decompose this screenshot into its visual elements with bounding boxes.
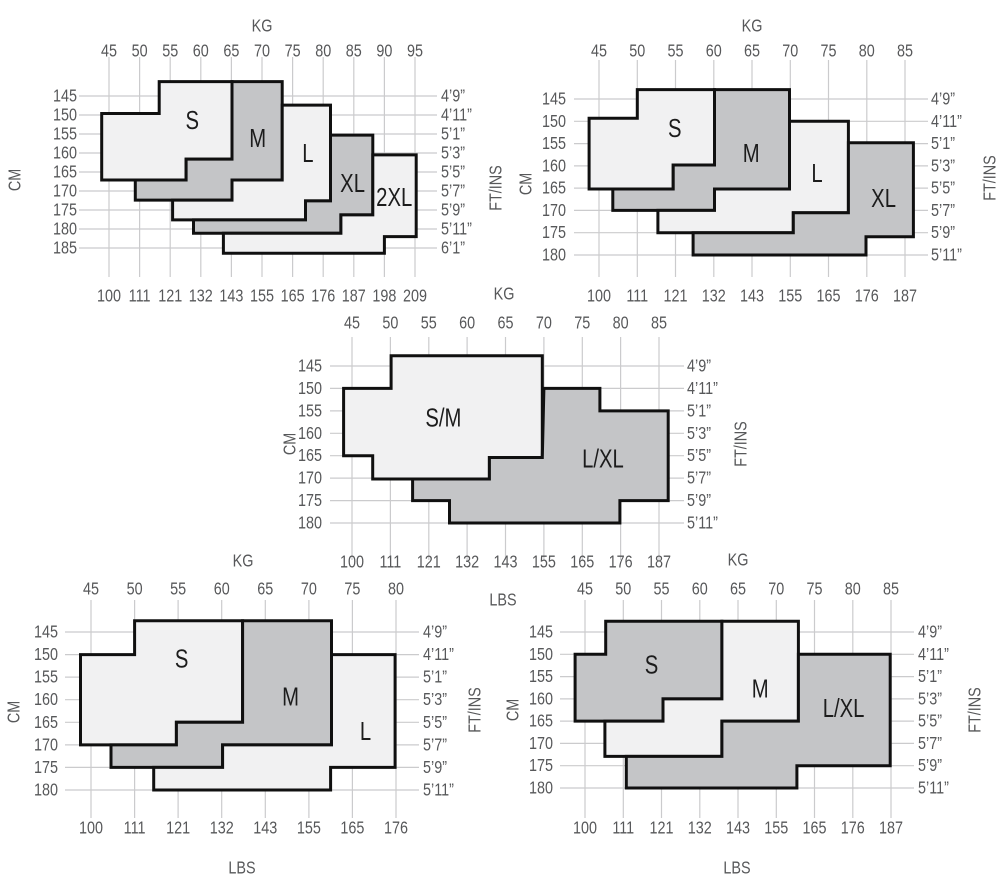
- cm-tick-label: 145: [34, 622, 58, 642]
- lbs-tick-label: 143: [493, 552, 517, 572]
- lbs-tick-label: 155: [297, 818, 321, 838]
- ftins-tick-label: 5’11”: [423, 780, 454, 800]
- kg-tick-label: 50: [382, 313, 398, 333]
- kg-tick-label: 60: [459, 313, 475, 333]
- ftins-tick-label: 5’11”: [931, 245, 962, 265]
- size-region-label-s: S: [645, 650, 659, 679]
- lbs-tick-label: 198: [372, 286, 396, 306]
- ftins-tick-label: 5’7”: [931, 200, 955, 220]
- kg-tick-label: 50: [615, 579, 631, 599]
- cm-tick-label: 170: [298, 468, 322, 488]
- lbs-tick-label: 176: [311, 286, 335, 306]
- ftins-tick-label: 5’5”: [423, 712, 447, 732]
- lbs-tick-label: 121: [166, 818, 190, 838]
- ftins-axis-title: FT/INS: [980, 155, 1000, 201]
- lbs-tick-label: 100: [97, 286, 121, 306]
- ftins-tick-label: 5’3”: [441, 143, 465, 163]
- lbs-tick-label: 187: [893, 286, 917, 306]
- size-region-label-xl: XL: [871, 183, 896, 212]
- cm-tick-label: 145: [298, 356, 322, 376]
- kg-tick-label: 50: [629, 41, 645, 61]
- size-region-label-s: S: [185, 105, 199, 134]
- ftins-tick-label: 5’5”: [441, 162, 465, 182]
- kg-tick-label: 60: [193, 41, 209, 61]
- ftins-tick-label: 5’3”: [918, 689, 942, 709]
- lbs-axis-title: LBS: [228, 858, 255, 878]
- kg-tick-label: 65: [730, 579, 746, 599]
- cm-axis-title: CM: [4, 701, 24, 723]
- size-region-label-2xl: 2XL: [376, 183, 412, 212]
- kg-tick-label: 75: [344, 579, 360, 599]
- lbs-tick-label: 121: [663, 286, 687, 306]
- ftins-tick-label: 6’1”: [441, 238, 465, 258]
- lbs-tick-label: 111: [626, 286, 648, 306]
- lbs-tick-label: 100: [587, 286, 611, 306]
- lbs-tick-label: 176: [855, 286, 879, 306]
- cm-tick-label: 145: [53, 86, 77, 106]
- ftins-tick-label: 4’9”: [931, 89, 955, 109]
- kg-tick-label: 95: [407, 41, 423, 61]
- cm-tick-label: 175: [298, 491, 322, 511]
- cm-tick-label: 150: [542, 111, 566, 131]
- lbs-tick-label: 121: [649, 818, 673, 838]
- kg-tick-label: 85: [346, 41, 362, 61]
- ftins-tick-label: 5’3”: [423, 690, 447, 710]
- ftins-tick-label: 4’11”: [687, 378, 718, 398]
- kg-tick-label: 90: [376, 41, 392, 61]
- ftins-tick-label: 5’3”: [687, 423, 711, 443]
- cm-tick-label: 175: [529, 756, 553, 776]
- kg-tick-label: 55: [653, 579, 669, 599]
- lbs-tick-label: 187: [879, 818, 903, 838]
- lbs-tick-label: 165: [816, 286, 840, 306]
- ftins-tick-label: 5’7”: [441, 181, 465, 201]
- cm-tick-label: 185: [53, 238, 77, 258]
- ftins-tick-label: 5’1”: [918, 667, 942, 687]
- ftins-tick-label: 4’11”: [931, 111, 962, 131]
- lbs-tick-label: 176: [609, 552, 633, 572]
- cm-tick-label: 160: [542, 156, 566, 176]
- kg-tick-label: 70: [301, 579, 317, 599]
- cm-tick-label: 155: [53, 124, 77, 144]
- kg-tick-label: 80: [859, 41, 875, 61]
- lbs-tick-label: 121: [417, 552, 441, 572]
- cm-tick-label: 155: [298, 401, 322, 421]
- kg-tick-label: 45: [344, 313, 360, 333]
- kg-tick-label: 55: [421, 313, 437, 333]
- kg-axis-title: KG: [233, 551, 254, 571]
- kg-tick-label: 60: [706, 41, 722, 61]
- size-region-label-l: L: [302, 139, 313, 168]
- kg-tick-label: 80: [845, 579, 861, 599]
- ftins-tick-label: 5’1”: [687, 401, 711, 421]
- cm-tick-label: 180: [542, 245, 566, 265]
- size-charts-canvas: SMLXL2XL45505560657075808590951001111211…: [0, 0, 1005, 891]
- size-region-label-s: S: [668, 113, 682, 142]
- size-region-label-l: L: [360, 717, 371, 746]
- ftins-tick-label: 5’3”: [931, 156, 955, 176]
- cm-tick-label: 160: [529, 689, 553, 709]
- lbs-tick-label: 209: [403, 286, 427, 306]
- cm-tick-label: 170: [529, 733, 553, 753]
- ftins-tick-label: 5’7”: [918, 733, 942, 753]
- ftins-axis-title: FT/INS: [465, 687, 485, 733]
- cm-axis-title: CM: [503, 699, 523, 721]
- kg-tick-label: 65: [257, 579, 273, 599]
- ftins-tick-label: 5’11”: [918, 778, 949, 798]
- ftins-tick-label: 5’1”: [441, 124, 465, 144]
- size-region-label-m: M: [282, 682, 299, 711]
- cm-tick-label: 160: [298, 423, 322, 443]
- cm-tick-label: 150: [298, 378, 322, 398]
- lbs-tick-label: 100: [340, 552, 364, 572]
- kg-tick-label: 60: [214, 579, 230, 599]
- lbs-tick-label: 143: [740, 286, 764, 306]
- cm-tick-label: 165: [34, 712, 58, 732]
- chart-2-four-sizes: SMLXL45505560657075808510011112113214315…: [516, 16, 1000, 306]
- kg-tick-label: 65: [223, 41, 239, 61]
- kg-tick-label: 50: [132, 41, 148, 61]
- cm-tick-label: 150: [34, 645, 58, 665]
- ftins-tick-label: 5’9”: [423, 757, 447, 777]
- chart-5-three-sizes: SML/XL4550556065707580851001111211321431…: [503, 550, 985, 878]
- kg-tick-label: 85: [897, 41, 913, 61]
- ftins-tick-label: 5’9”: [918, 756, 942, 776]
- lbs-tick-label: 187: [647, 552, 671, 572]
- size-region-label-m: M: [249, 124, 266, 153]
- ftins-tick-label: 5’5”: [918, 711, 942, 731]
- lbs-tick-label: 111: [379, 552, 401, 572]
- lbs-tick-label: 165: [570, 552, 594, 572]
- kg-tick-label: 70: [782, 41, 798, 61]
- cm-tick-label: 155: [542, 134, 566, 154]
- size-chart-page: SMLXL2XL45505560657075808590951001111211…: [0, 0, 1005, 891]
- ftins-axis-title: FT/INS: [965, 687, 985, 733]
- size-region-label-l-xl: L/XL: [823, 694, 865, 723]
- cm-tick-label: 150: [53, 105, 77, 125]
- kg-tick-label: 50: [127, 579, 143, 599]
- kg-tick-label: 70: [768, 579, 784, 599]
- cm-tick-label: 180: [298, 513, 322, 533]
- size-region-label-l: L: [811, 158, 822, 187]
- kg-tick-label: 55: [667, 41, 683, 61]
- kg-tick-label: 45: [591, 41, 607, 61]
- kg-tick-label: 80: [388, 579, 404, 599]
- ftins-tick-label: 5’11”: [687, 513, 718, 533]
- cm-tick-label: 155: [34, 667, 58, 687]
- kg-tick-label: 75: [285, 41, 301, 61]
- chart-3-two-sizes: S/ML/XL455055606570758085100111121132143…: [280, 284, 751, 610]
- kg-tick-label: 60: [692, 579, 708, 599]
- ftins-tick-label: 5’5”: [931, 178, 955, 198]
- kg-axis-title: KG: [728, 550, 749, 570]
- kg-tick-label: 65: [497, 313, 513, 333]
- lbs-tick-label: 176: [384, 818, 408, 838]
- ftins-tick-label: 5’11”: [441, 219, 472, 239]
- lbs-tick-label: 165: [802, 818, 826, 838]
- size-region-label-xl: XL: [340, 169, 365, 198]
- kg-tick-label: 75: [806, 579, 822, 599]
- cm-tick-label: 170: [53, 181, 77, 201]
- lbs-tick-label: 155: [764, 818, 788, 838]
- cm-tick-label: 165: [298, 446, 322, 466]
- cm-axis-title: CM: [5, 169, 25, 191]
- lbs-tick-label: 187: [342, 286, 366, 306]
- cm-tick-label: 150: [529, 644, 553, 664]
- cm-axis-title: CM: [516, 173, 536, 195]
- kg-tick-label: 80: [315, 41, 331, 61]
- size-region-label-m: M: [743, 138, 760, 167]
- lbs-tick-label: 155: [250, 286, 274, 306]
- ftins-tick-label: 5’7”: [687, 468, 711, 488]
- ftins-tick-label: 5’9”: [441, 200, 465, 220]
- kg-axis-title: KG: [252, 16, 273, 36]
- ftins-tick-label: 4’11”: [441, 105, 472, 125]
- lbs-tick-label: 143: [219, 286, 243, 306]
- ftins-axis-title: FT/INS: [486, 165, 506, 211]
- ftins-tick-label: 5’7”: [423, 735, 447, 755]
- lbs-axis-title: LBS: [489, 590, 516, 610]
- kg-tick-label: 85: [651, 313, 667, 333]
- kg-axis-title: KG: [494, 284, 515, 304]
- lbs-tick-label: 176: [841, 818, 865, 838]
- kg-tick-label: 75: [574, 313, 590, 333]
- cm-tick-label: 180: [34, 780, 58, 800]
- cm-tick-label: 160: [53, 143, 77, 163]
- ftins-tick-label: 5’5”: [687, 446, 711, 466]
- lbs-tick-label: 155: [778, 286, 802, 306]
- chart-4-three-sizes: SML4550556065707580100111121132143155165…: [4, 551, 485, 878]
- cm-tick-label: 175: [34, 757, 58, 777]
- kg-tick-label: 85: [883, 579, 899, 599]
- size-region-label-s-m: S/M: [425, 403, 461, 432]
- lbs-tick-label: 111: [124, 818, 146, 838]
- kg-tick-label: 65: [744, 41, 760, 61]
- size-region-label-s: S: [175, 644, 189, 673]
- lbs-tick-label: 165: [340, 818, 364, 838]
- lbs-tick-label: 165: [281, 286, 305, 306]
- cm-tick-label: 180: [53, 219, 77, 239]
- cm-tick-label: 145: [529, 622, 553, 642]
- lbs-tick-label: 132: [455, 552, 479, 572]
- lbs-tick-label: 100: [573, 818, 597, 838]
- chart-1-five-sizes: SMLXL2XL45505560657075808590951001111211…: [5, 16, 506, 306]
- ftins-tick-label: 5’9”: [687, 491, 711, 511]
- size-region-label-m: M: [752, 674, 769, 703]
- ftins-tick-label: 4’9”: [687, 356, 711, 376]
- lbs-tick-label: 155: [532, 552, 556, 572]
- lbs-tick-label: 111: [612, 818, 634, 838]
- lbs-tick-label: 111: [129, 286, 151, 306]
- kg-tick-label: 45: [577, 579, 593, 599]
- cm-tick-label: 180: [529, 778, 553, 798]
- kg-tick-label: 80: [613, 313, 629, 333]
- ftins-tick-label: 5’9”: [931, 223, 955, 243]
- cm-tick-label: 175: [542, 223, 566, 243]
- size-region-label-l-xl: L/XL: [582, 444, 624, 473]
- lbs-tick-label: 132: [688, 818, 712, 838]
- kg-tick-label: 75: [820, 41, 836, 61]
- ftins-tick-label: 4’9”: [423, 622, 447, 642]
- lbs-tick-label: 132: [702, 286, 726, 306]
- cm-tick-label: 160: [34, 690, 58, 710]
- cm-axis-title: CM: [280, 433, 300, 455]
- cm-tick-label: 165: [53, 162, 77, 182]
- lbs-tick-label: 121: [158, 286, 182, 306]
- kg-tick-label: 70: [536, 313, 552, 333]
- ftins-axis-title: FT/INS: [731, 421, 751, 467]
- ftins-tick-label: 5’1”: [423, 667, 447, 687]
- ftins-tick-label: 4’9”: [918, 622, 942, 642]
- ftins-tick-label: 4’11”: [918, 644, 949, 664]
- kg-axis-title: KG: [742, 16, 763, 36]
- kg-tick-label: 45: [101, 41, 117, 61]
- ftins-tick-label: 4’11”: [423, 645, 454, 665]
- ftins-tick-label: 5’1”: [931, 134, 955, 154]
- cm-tick-label: 165: [542, 178, 566, 198]
- lbs-tick-label: 100: [79, 818, 103, 838]
- cm-tick-label: 145: [542, 89, 566, 109]
- kg-tick-label: 45: [83, 579, 99, 599]
- lbs-axis-title: LBS: [723, 858, 750, 878]
- cm-tick-label: 170: [542, 200, 566, 220]
- kg-tick-label: 55: [170, 579, 186, 599]
- kg-tick-label: 55: [162, 41, 178, 61]
- lbs-tick-label: 143: [253, 818, 277, 838]
- lbs-tick-label: 143: [726, 818, 750, 838]
- kg-tick-label: 70: [254, 41, 270, 61]
- cm-tick-label: 175: [53, 200, 77, 220]
- cm-tick-label: 165: [529, 711, 553, 731]
- cm-tick-label: 155: [529, 667, 553, 687]
- lbs-tick-label: 132: [210, 818, 234, 838]
- lbs-tick-label: 132: [189, 286, 213, 306]
- ftins-tick-label: 4’9”: [441, 86, 465, 106]
- cm-tick-label: 170: [34, 735, 58, 755]
